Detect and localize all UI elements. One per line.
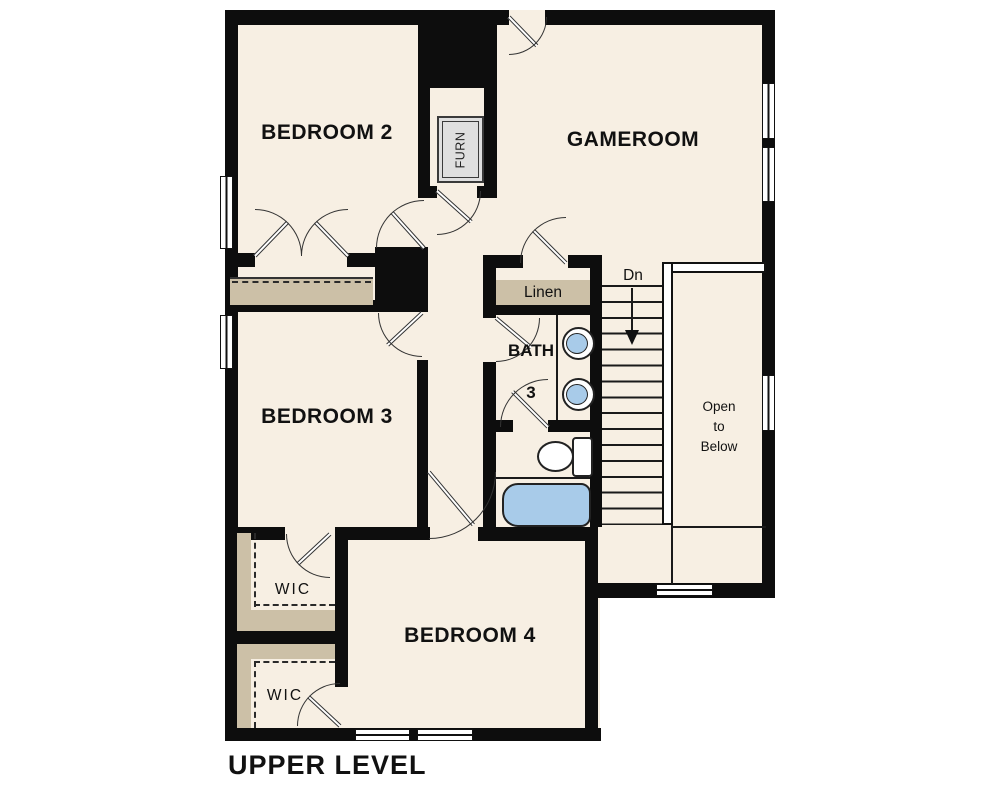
wall-wic-divider [225, 630, 348, 644]
window-bedroom3-left [220, 315, 233, 369]
wall-bedroom2-bottom-right [347, 253, 375, 267]
open-to-below-line1: Open [702, 399, 735, 414]
wall-linen-top-left [490, 255, 523, 268]
bath3-label: BATH 3 [508, 319, 554, 403]
open-below-edge-horizontal [671, 526, 766, 528]
open-to-below-label: Open to Below [701, 397, 738, 457]
bath3-label-line1: BATH [508, 341, 554, 360]
stairs-dn-label: Dn [623, 267, 643, 285]
wic1-shelf-bottom [237, 610, 335, 631]
bath3-label-line2: 3 [526, 383, 535, 402]
window-openbelow-right [762, 375, 775, 431]
open-to-below-line3: Below [701, 439, 738, 454]
open-below-edge-vertical [671, 525, 673, 585]
furnace-label: FURN [454, 131, 468, 168]
window-bedroom4-bottom-1 [355, 729, 410, 741]
open-to-below-line2: to [713, 419, 724, 434]
window-section-bottom [656, 584, 713, 596]
wall-bedroom3-bottom-right [335, 527, 430, 540]
toilet-tank [572, 437, 593, 477]
wic1-rod-horizontal [254, 604, 335, 606]
wall-furn-right [484, 25, 497, 193]
wic2-label: WIC [267, 687, 303, 705]
toilet-bowl [537, 441, 574, 472]
wic1-rod-vertical [254, 533, 256, 607]
wic2-shelf-top [237, 644, 335, 659]
wall-linen-bottom [496, 305, 590, 315]
plan-title: UPPER LEVEL [228, 750, 427, 781]
wall-top-right [545, 10, 775, 25]
stair-railing-top [662, 262, 766, 273]
wic2-rod-horizontal [254, 661, 335, 663]
wall-furn-left [418, 88, 430, 191]
wall-bedroom2-bottom-left [225, 253, 255, 267]
stair-down-arrow-icon [625, 330, 639, 345]
furnace-unit-inner: FURN [442, 121, 479, 178]
gameroom-label: GAMEROOM [567, 128, 699, 152]
bedroom4-label: BEDROOM 4 [404, 624, 536, 648]
window-bedroom2-left [220, 176, 233, 249]
wall-bottom [225, 728, 601, 741]
furnace-unit: FURN [437, 116, 484, 183]
wall-top-left [225, 10, 509, 25]
wic2-rod-vertical [254, 661, 256, 728]
floor-plan: FURN BEDROOM 2 GAMEROOM BEDROOM 3 BEDROO… [0, 0, 1000, 800]
sink-1 [562, 327, 595, 360]
stair-railing-side [662, 262, 673, 525]
bedroom2-label: BEDROOM 2 [261, 121, 393, 145]
stair-arrow-shaft [631, 288, 633, 332]
wall-bedroom4-right [585, 527, 598, 741]
wall-bath-divider-right [548, 420, 590, 432]
window-gameroom-right-1 [762, 83, 775, 139]
window-gameroom-right-2 [762, 147, 775, 202]
wall-wic-right [335, 527, 348, 687]
vanity-edge-line [556, 315, 558, 420]
wic1-label: WIC [275, 581, 311, 599]
tub-platform-line [496, 477, 590, 479]
bedroom3-label: BEDROOM 3 [261, 405, 393, 429]
sink-2-basin [566, 384, 588, 405]
sink-2 [562, 378, 595, 411]
sink-1-basin [566, 333, 588, 354]
wall-bedroom4-top [478, 527, 598, 541]
wall-furn-stub-left [418, 186, 437, 198]
bathtub [502, 483, 591, 527]
window-bedroom4-bottom-2 [417, 729, 473, 741]
wall-chimney-block [418, 25, 490, 88]
wall-bedroom3-right [417, 360, 428, 527]
bedroom2-closet-rod [232, 281, 371, 283]
linen-label: Linen [524, 284, 562, 302]
